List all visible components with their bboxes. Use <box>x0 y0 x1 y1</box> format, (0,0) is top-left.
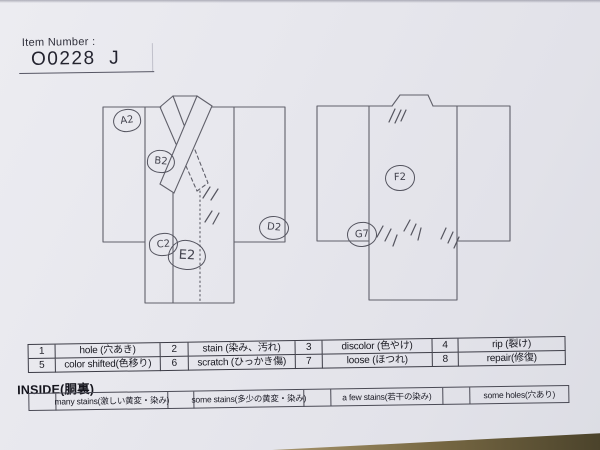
legend-label: repair(修復) <box>459 351 566 367</box>
photo-frame: Item Number : O0228 J <box>0 0 600 450</box>
inside-checkbox-cell <box>304 390 331 407</box>
inside-condition-table: many stains(激しい黄変・染み) some stains(多少の黄変・… <box>28 385 569 411</box>
inside-option-label: some holes(穴あり) <box>470 386 569 404</box>
legend-num: 2 <box>161 343 189 357</box>
legend-label: hole (穴あき) <box>56 343 161 359</box>
legend-label: scratch (ひっかき傷) <box>189 355 296 371</box>
legend-num: 7 <box>296 355 323 369</box>
legend-num: 8 <box>433 353 459 367</box>
legend-num: 4 <box>432 339 458 353</box>
inside-checkbox-cell <box>29 394 56 411</box>
condition-legend-table: 1 hole (穴あき) 2 stain (染み、汚れ) 3 discolor … <box>28 336 566 373</box>
legend-num: 1 <box>29 345 56 359</box>
legend-num: 3 <box>295 341 322 355</box>
inside-option-label: some stains(多少の黄変・染み) <box>194 390 304 409</box>
legend-label: loose (ほつれ) <box>323 353 433 369</box>
legend-label: color shifted(色移り) <box>56 357 161 373</box>
inside-option-label: a few stains(若干の染み) <box>331 388 443 407</box>
inside-checkbox-cell <box>443 387 470 404</box>
bottom-section: 1 hole (穴あき) 2 stain (染み、汚れ) 3 discolor … <box>0 0 600 450</box>
legend-num: 5 <box>29 359 56 373</box>
legend-num: 6 <box>161 357 189 371</box>
inside-option-label: many stains(激しい黄変・染み) <box>56 392 168 411</box>
